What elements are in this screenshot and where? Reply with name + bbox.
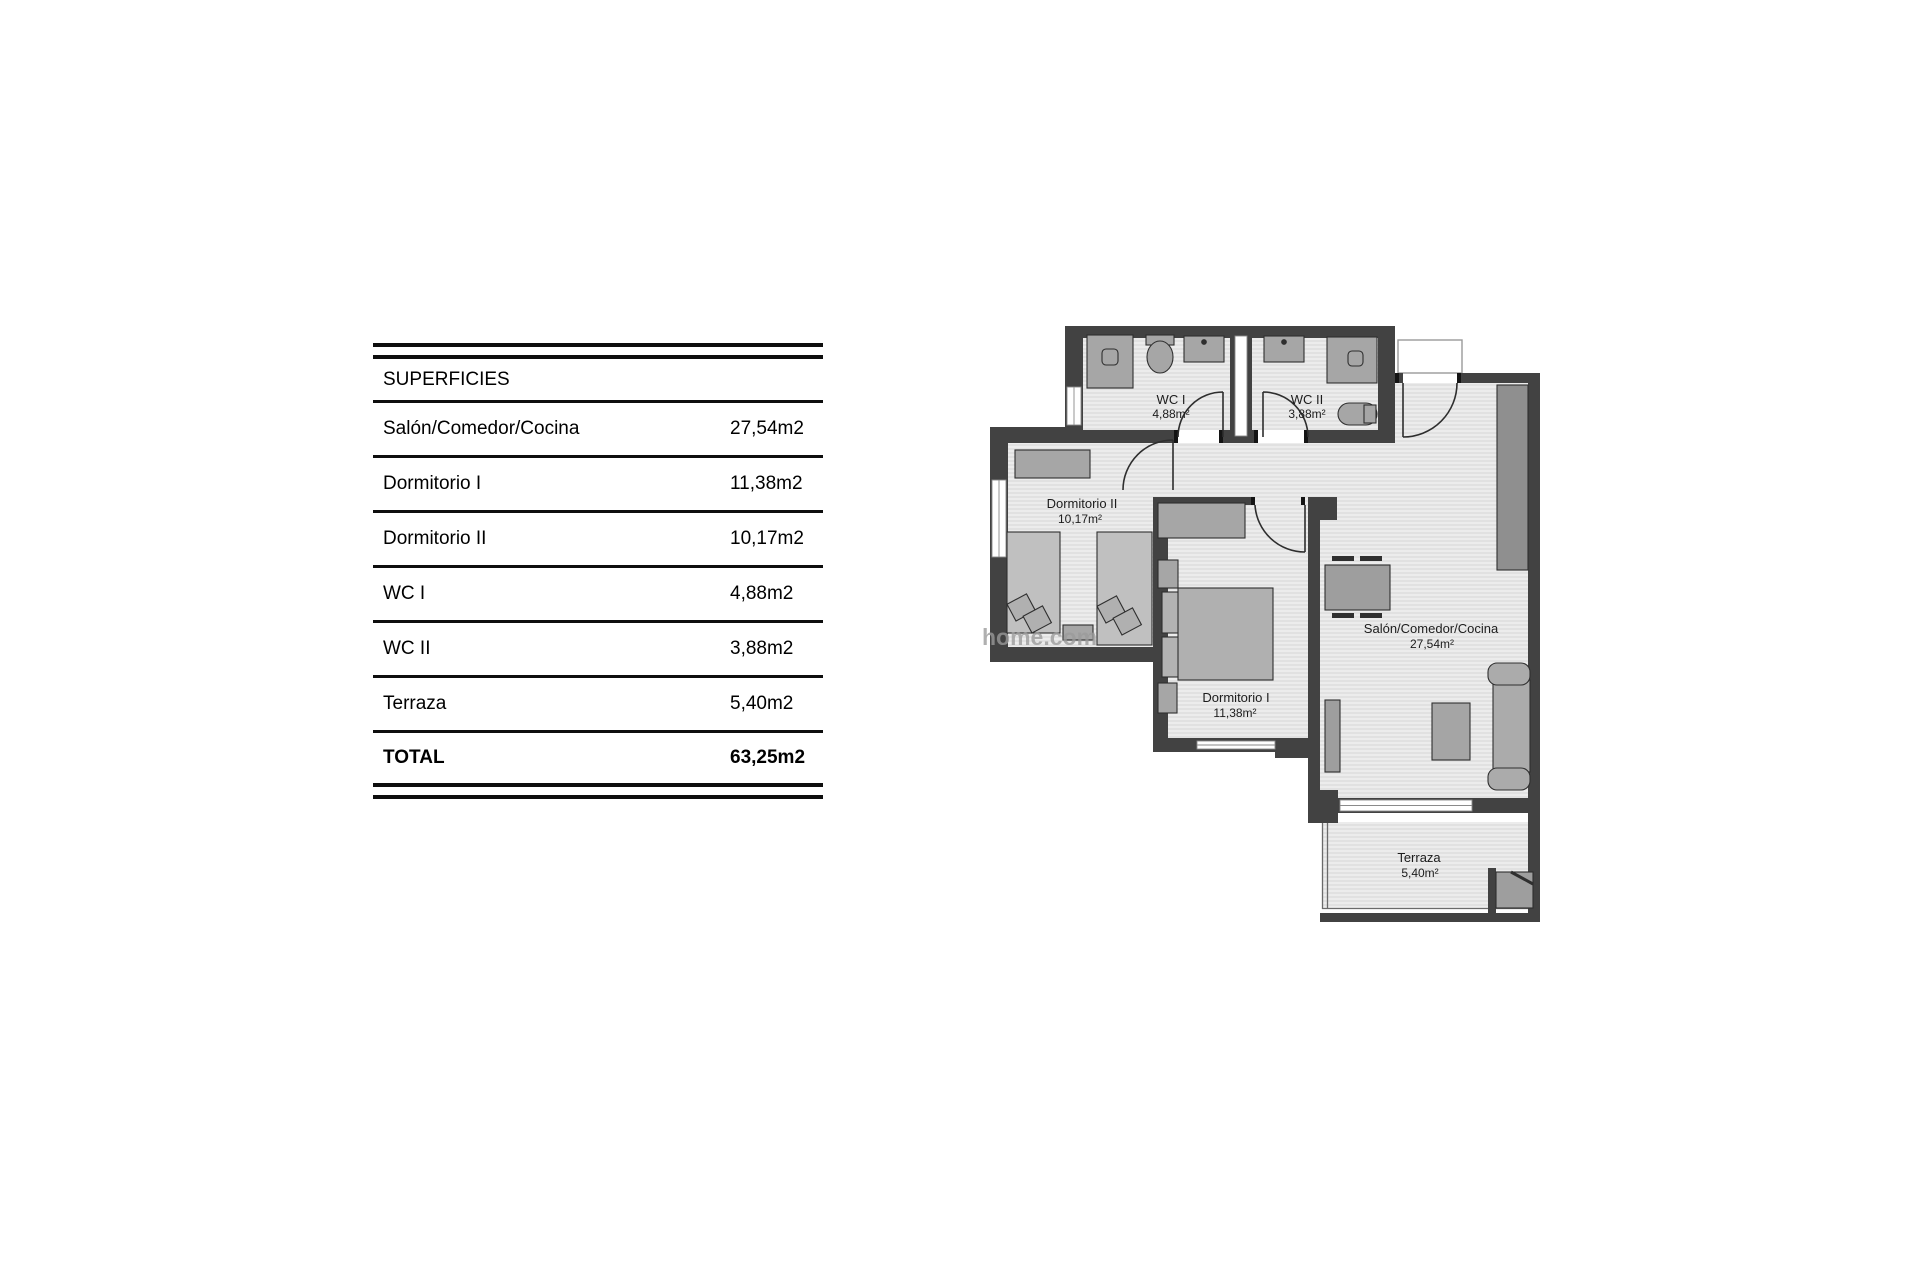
entry-porch	[1398, 340, 1462, 373]
row-label: Dormitorio I	[373, 473, 481, 495]
table-row: Dormitorio I 11,38m2	[373, 458, 823, 513]
wardrobe	[1158, 503, 1245, 538]
surfaces-table: SUPERFICIES Salón/Comedor/Cocina 27,54m2…	[373, 343, 823, 799]
nightstand	[1158, 560, 1178, 588]
washbasin-side	[1364, 405, 1376, 423]
room-area-wc2: 3,88m²	[1288, 407, 1325, 421]
room-label-terraza: Terraza	[1397, 850, 1441, 865]
table-row: Dormitorio II 10,17m2	[373, 513, 823, 568]
row-value: 5,40m2	[730, 693, 793, 715]
room-area-dorm1: 11,38m²	[1213, 706, 1256, 720]
room-area-terraza: 5,40m²	[1401, 866, 1438, 880]
row-value: 3,88m2	[730, 638, 793, 660]
table-row: WC II 3,88m2	[373, 623, 823, 678]
row-label: WC I	[373, 583, 425, 605]
row-value: 4,88m2	[730, 583, 793, 605]
table-row: Terraza 5,40m2	[373, 678, 823, 733]
sofa-arm	[1488, 663, 1530, 685]
faucet	[1282, 340, 1287, 345]
table-total-row: TOTAL 63,25m2	[373, 733, 823, 783]
sofa-arm	[1488, 768, 1530, 790]
bed-double	[1178, 588, 1273, 680]
dining-table	[1325, 565, 1390, 610]
coffee-table	[1432, 703, 1470, 760]
floor-plan: WC I 4,88m² WC II 3,88m² Dormitorio II 1…	[960, 300, 1600, 960]
room-label-wc2: WC II	[1291, 392, 1324, 407]
faucet	[1202, 340, 1207, 345]
room-label-wc1: WC I	[1157, 392, 1186, 407]
watermark: home.com	[982, 624, 1097, 650]
table-row: WC I 4,88m2	[373, 568, 823, 623]
room-area-wc1: 4,88m²	[1152, 407, 1189, 421]
washing-machine	[1087, 335, 1133, 388]
row-label: Salón/Comedor/Cocina	[373, 418, 579, 440]
total-label: TOTAL	[373, 747, 445, 769]
row-label: Dormitorio II	[373, 528, 486, 550]
wall-slot	[1235, 336, 1247, 436]
row-value: 11,38m2	[730, 473, 803, 495]
table-top-double-rule	[373, 343, 823, 359]
tv-cabinet	[1325, 700, 1340, 772]
row-value: 10,17m2	[730, 528, 804, 550]
room-area-salon: 27,54m²	[1410, 637, 1454, 651]
room-label-dorm2: Dormitorio II	[1047, 496, 1118, 511]
toilet-bowl	[1147, 341, 1173, 373]
total-value: 63,25m2	[730, 747, 805, 769]
sofa-body	[1493, 680, 1530, 772]
furniture-terrace	[1496, 872, 1533, 908]
row-value: 27,54m2	[730, 418, 804, 440]
table-row: Salón/Comedor/Cocina 27,54m2	[373, 403, 823, 458]
nightstand	[1158, 683, 1177, 713]
room-area-dorm2: 10,17m²	[1058, 512, 1102, 526]
page: { "table": { "header": "SUPERFICIES", "r…	[0, 0, 1920, 1280]
room-label-salon: Salón/Comedor/Cocina	[1364, 621, 1499, 636]
wardrobe	[1015, 450, 1090, 478]
kitchen-counter	[1497, 385, 1528, 570]
table-bottom-double-rule	[373, 783, 823, 799]
table-header: SUPERFICIES	[373, 359, 823, 403]
row-label: Terraza	[373, 693, 446, 715]
ac-unit	[1496, 872, 1533, 908]
room-label-dorm1: Dormitorio I	[1202, 690, 1269, 705]
row-label: WC II	[373, 638, 431, 660]
cabinet	[1327, 337, 1377, 383]
